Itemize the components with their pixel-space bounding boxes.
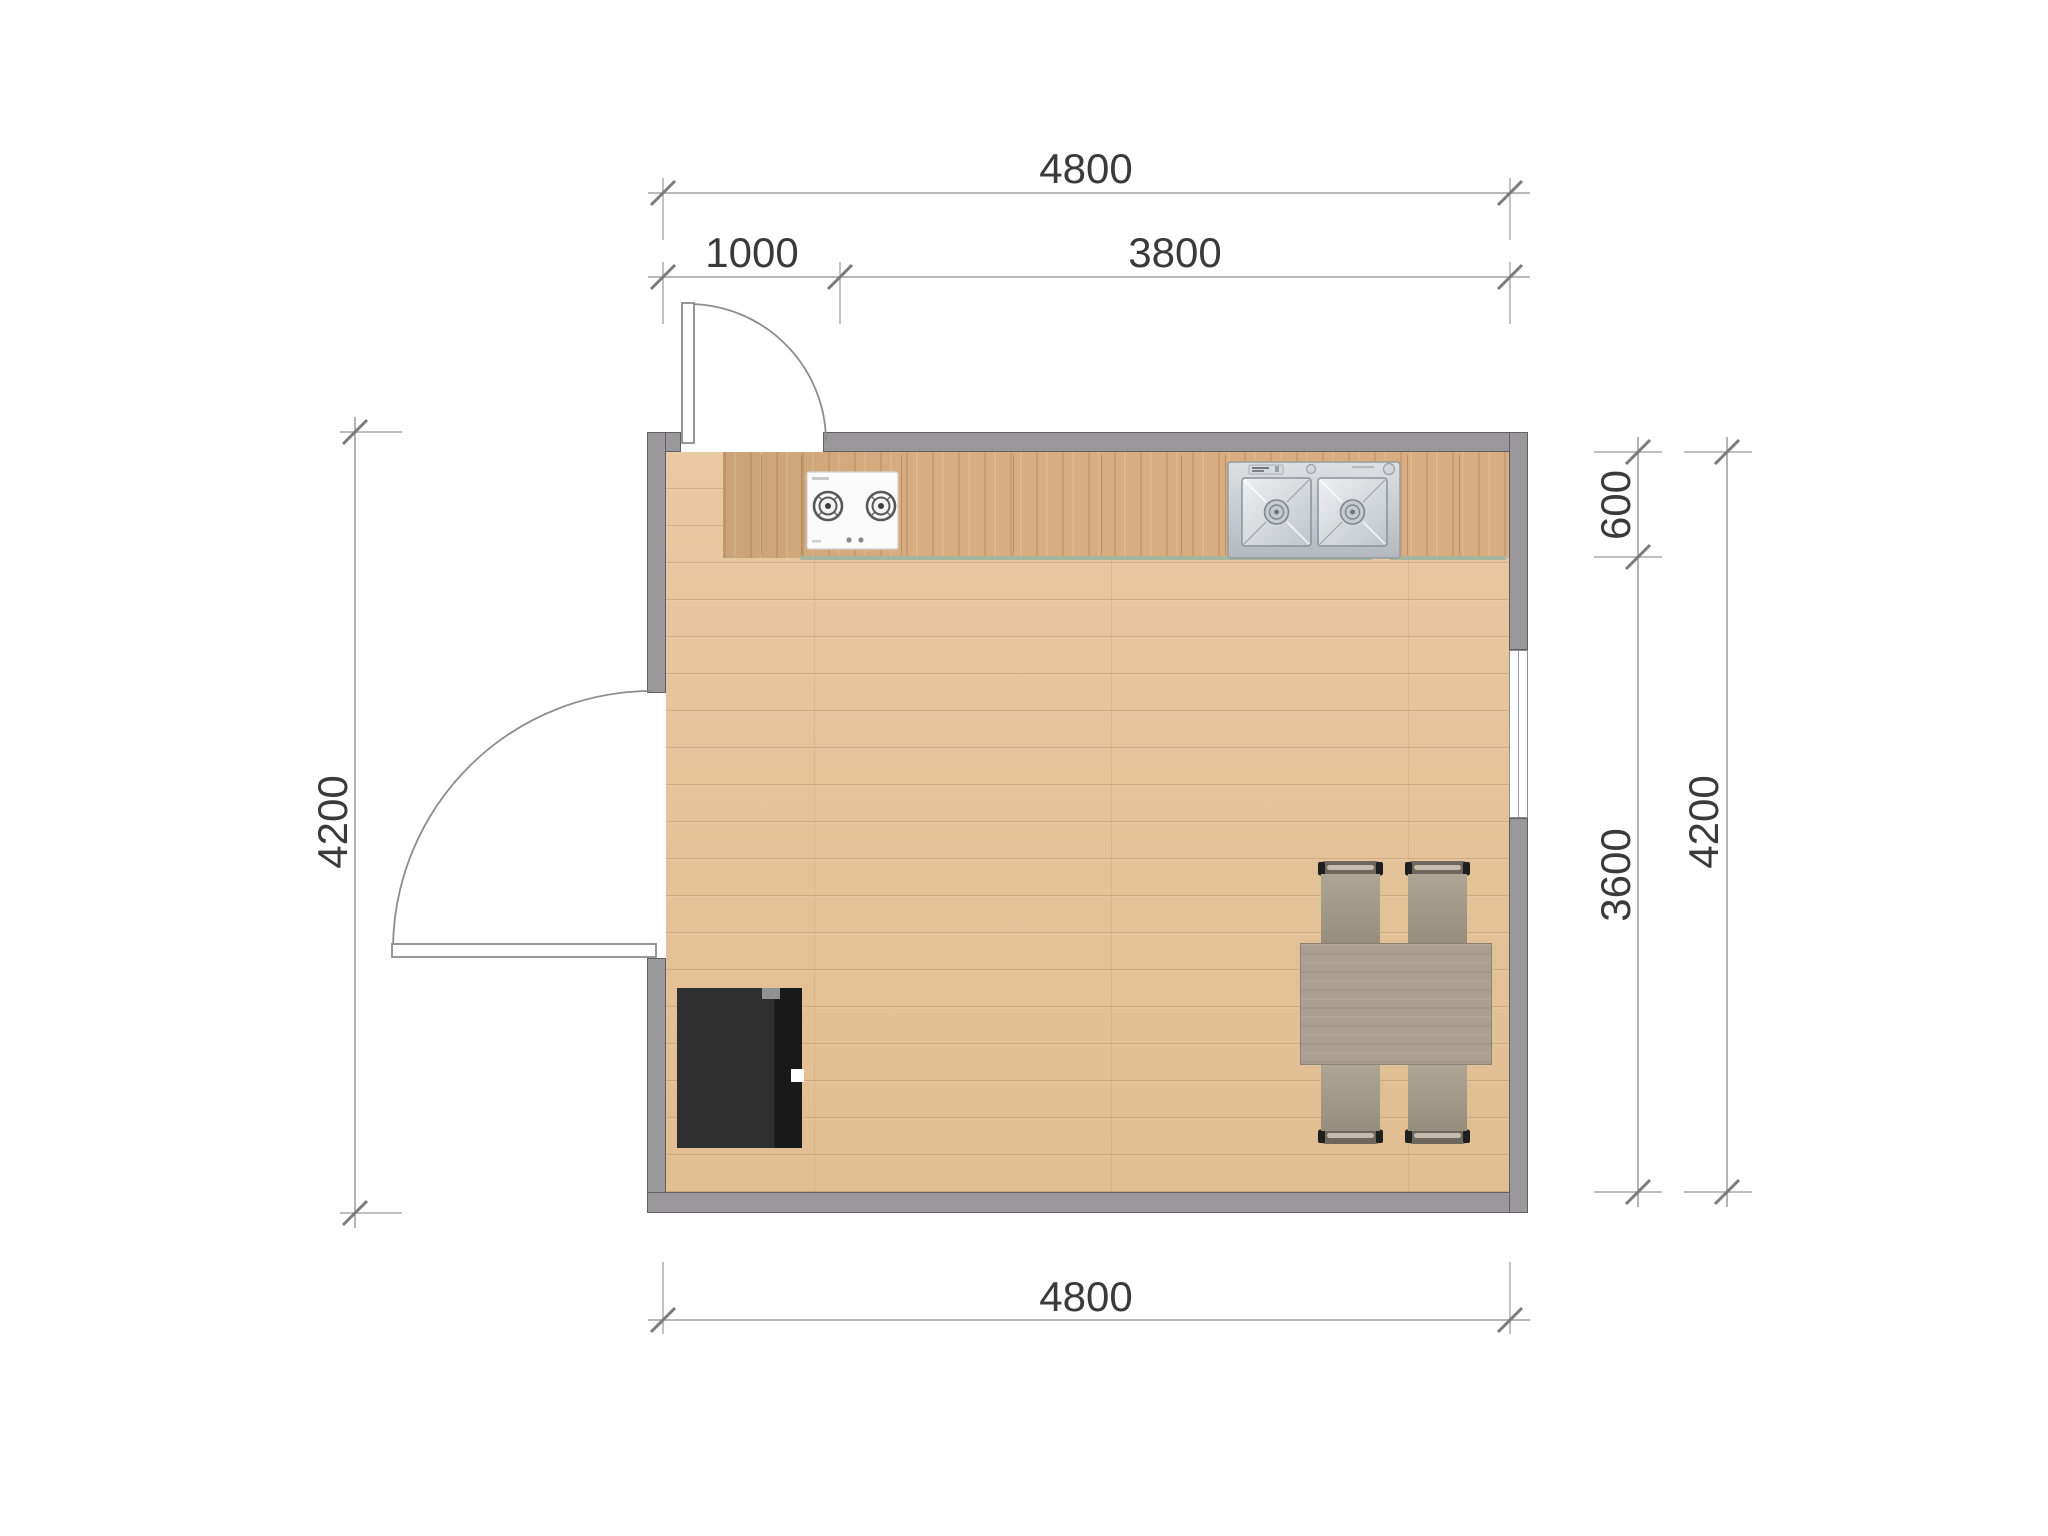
cooktop-knob — [846, 537, 851, 542]
dim-label-room-depth: 3600 — [1592, 828, 1639, 921]
faucet-hole — [1384, 464, 1395, 475]
double-sink[interactable] — [1228, 462, 1400, 558]
dim-label-counter-depth: 600 — [1592, 470, 1639, 540]
floor-plan-canvas: 4800 1000 3800 4800 4200 — [0, 0, 2048, 1536]
door-leaf — [392, 944, 656, 957]
sink-bowl — [1318, 478, 1387, 546]
door-swing-arc — [690, 304, 826, 442]
door-leaf — [682, 303, 694, 443]
sink-bowl — [1242, 478, 1311, 546]
door-swing-arc — [393, 691, 652, 946]
plan-overlay: 4800 1000 3800 4800 4200 — [0, 0, 2048, 1536]
door-left[interactable] — [392, 691, 656, 957]
sink-fitting — [1275, 466, 1279, 472]
dimensions: 4800 1000 3800 4800 4200 — [309, 145, 1752, 1334]
dim-label-left-total: 4200 — [309, 775, 356, 868]
gas-cooktop[interactable] — [807, 472, 898, 549]
door-top[interactable] — [682, 303, 826, 443]
dim-label-top-total: 4800 — [1039, 145, 1132, 192]
sink-label — [1352, 466, 1374, 468]
dim-label-top-left: 1000 — [705, 229, 798, 276]
dim-label-top-right: 3800 — [1128, 229, 1221, 276]
cooktop-knob — [858, 537, 863, 542]
dim-label-right-total: 4200 — [1680, 775, 1727, 868]
faucet-hole — [1307, 465, 1316, 474]
dim-label-bottom-total: 4800 — [1039, 1273, 1132, 1320]
